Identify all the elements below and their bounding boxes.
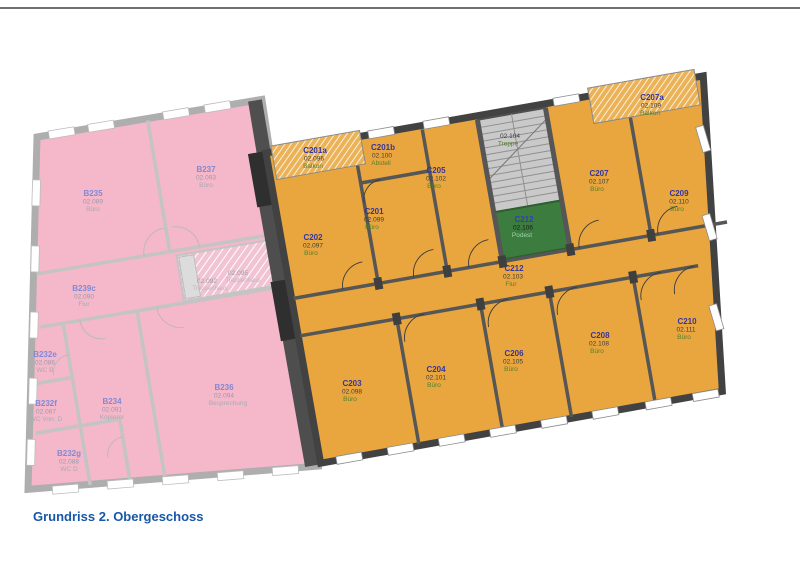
room-label-c206-type: Büro <box>504 366 518 373</box>
room-label-c210-type: Büro <box>677 334 691 341</box>
room-label-c207a-name: C207a <box>640 93 664 102</box>
room-label-c210-name: C210 <box>677 317 697 326</box>
room-label-c201-type: Büro <box>365 224 379 231</box>
room-label-b232e-type: WC B <box>37 367 54 374</box>
room-label-c203-number: 02.098 <box>342 389 362 396</box>
room-label-b239c-type: Flur <box>78 301 90 308</box>
room-label-02092-number: 02.092 <box>197 278 217 285</box>
room-label-c201a-name: C201a <box>303 146 327 155</box>
room-label-b232g-number: 02.088 <box>59 459 79 466</box>
room-label-c209-number: 02.110 <box>669 199 689 206</box>
c-wing-geometry <box>247 68 759 470</box>
room-label-b232g-name: B232g <box>57 449 81 458</box>
floorplan-drawing: B235 02.089 Büro B237 02.093 Büro B239c … <box>0 0 800 562</box>
room-label-c201b-number: 02.100 <box>372 153 392 160</box>
room-label-c204-type: Büro <box>427 382 441 389</box>
room-label-c208-name: C208 <box>590 331 610 340</box>
room-label-b232e-name: B232e <box>33 350 57 359</box>
room-label-c208-type: Büro <box>590 348 604 355</box>
room-label-c212-podest-number: 02.106 <box>513 225 533 232</box>
room-label-c201a-number: 02.096 <box>304 156 324 163</box>
room-label-c201-name: C201 <box>364 207 384 216</box>
room-label-c207-type: Büro <box>590 186 604 193</box>
room-label-c202-number: 02.097 <box>303 243 323 250</box>
room-label-b232f-name: B232f <box>35 399 57 408</box>
room-label-b235-number: 02.089 <box>83 199 103 206</box>
room-label-02095-number: 02.095 <box>228 270 248 277</box>
room-label-02104-number: 02.104 <box>500 133 520 140</box>
room-label-c212-flur-name: C212 <box>504 264 524 273</box>
room-label-c203-name: C203 <box>342 379 362 388</box>
room-label-c205-number: 02.102 <box>426 176 446 183</box>
room-label-c207a-type: Balkon <box>640 110 660 117</box>
room-label-c205-type: Büro <box>427 183 441 190</box>
room-label-c212-flur-type: Flur <box>505 281 517 288</box>
room-label-c201a-type: Balkon <box>303 163 323 170</box>
room-label-b237-type: Büro <box>199 182 213 189</box>
room-label-c209-name: C209 <box>669 189 689 198</box>
room-label-b234-name: B234 <box>102 397 122 406</box>
room-label-c212-podest-type: Podest <box>512 232 532 239</box>
room-label-b232g-type: WC D <box>60 466 78 473</box>
room-label-02104-type: Treppe <box>498 141 519 148</box>
room-label-b234-number: 02.091 <box>102 407 122 414</box>
room-label-c201b-name: C201b <box>371 143 395 152</box>
plan-caption: Grundriss 2. Obergeschoss <box>33 509 204 524</box>
room-label-c203-type: Büro <box>343 396 357 403</box>
room-label-b239c-name: B239c <box>72 284 96 293</box>
room-label-c210-number: 02.111 <box>677 327 696 334</box>
room-label-b239c-number: 02.090 <box>74 294 94 301</box>
room-label-b236-number: 02.094 <box>214 393 234 400</box>
room-label-b235-name: B235 <box>83 189 103 198</box>
room-label-02095-type: Treppenhaus <box>225 278 260 284</box>
room-label-b234-type: Kopierer <box>100 414 125 421</box>
floorplan-page: B235 02.089 Büro B237 02.093 Büro B239c … <box>0 0 800 562</box>
room-label-b236-type: Besprechung <box>209 400 248 407</box>
room-label-c201-number: 02.099 <box>364 217 384 224</box>
room-label-c207-name: C207 <box>589 169 609 178</box>
room-label-b237-name: B237 <box>196 165 216 174</box>
room-label-c201b-type: Abstell <box>371 160 391 167</box>
room-label-c204-number: 02.101 <box>426 375 446 382</box>
room-label-c212-flur-number: 02.103 <box>503 274 523 281</box>
room-label-c207-number: 02.107 <box>589 179 609 186</box>
room-label-b237-number: 02.093 <box>196 175 216 182</box>
room-label-c208-number: 02.108 <box>589 341 609 348</box>
room-label-b236-name: B236 <box>214 383 234 392</box>
room-label-c212-podest-name: C212 <box>514 215 534 224</box>
room-label-b232f-number: 02.087 <box>36 409 56 416</box>
room-label-c202-name: C202 <box>303 233 323 242</box>
room-label-c209-type: Büro <box>670 206 684 213</box>
room-label-b235-type: Büro <box>86 206 100 213</box>
room-label-c205-name: C205 <box>426 166 446 175</box>
room-label-c204-name: C204 <box>426 365 446 374</box>
room-label-b232e-number: 02.086 <box>35 360 55 367</box>
room-label-c207a-number: 02.109 <box>641 103 661 110</box>
room-label-02092-type: Treppenhaus <box>192 286 227 292</box>
room-label-c202-type: Büro <box>304 250 318 257</box>
room-label-c206-number: 02.105 <box>503 359 523 366</box>
room-label-b232f-type: WC Vorr. D <box>30 416 63 423</box>
room-label-c206-name: C206 <box>504 349 524 358</box>
